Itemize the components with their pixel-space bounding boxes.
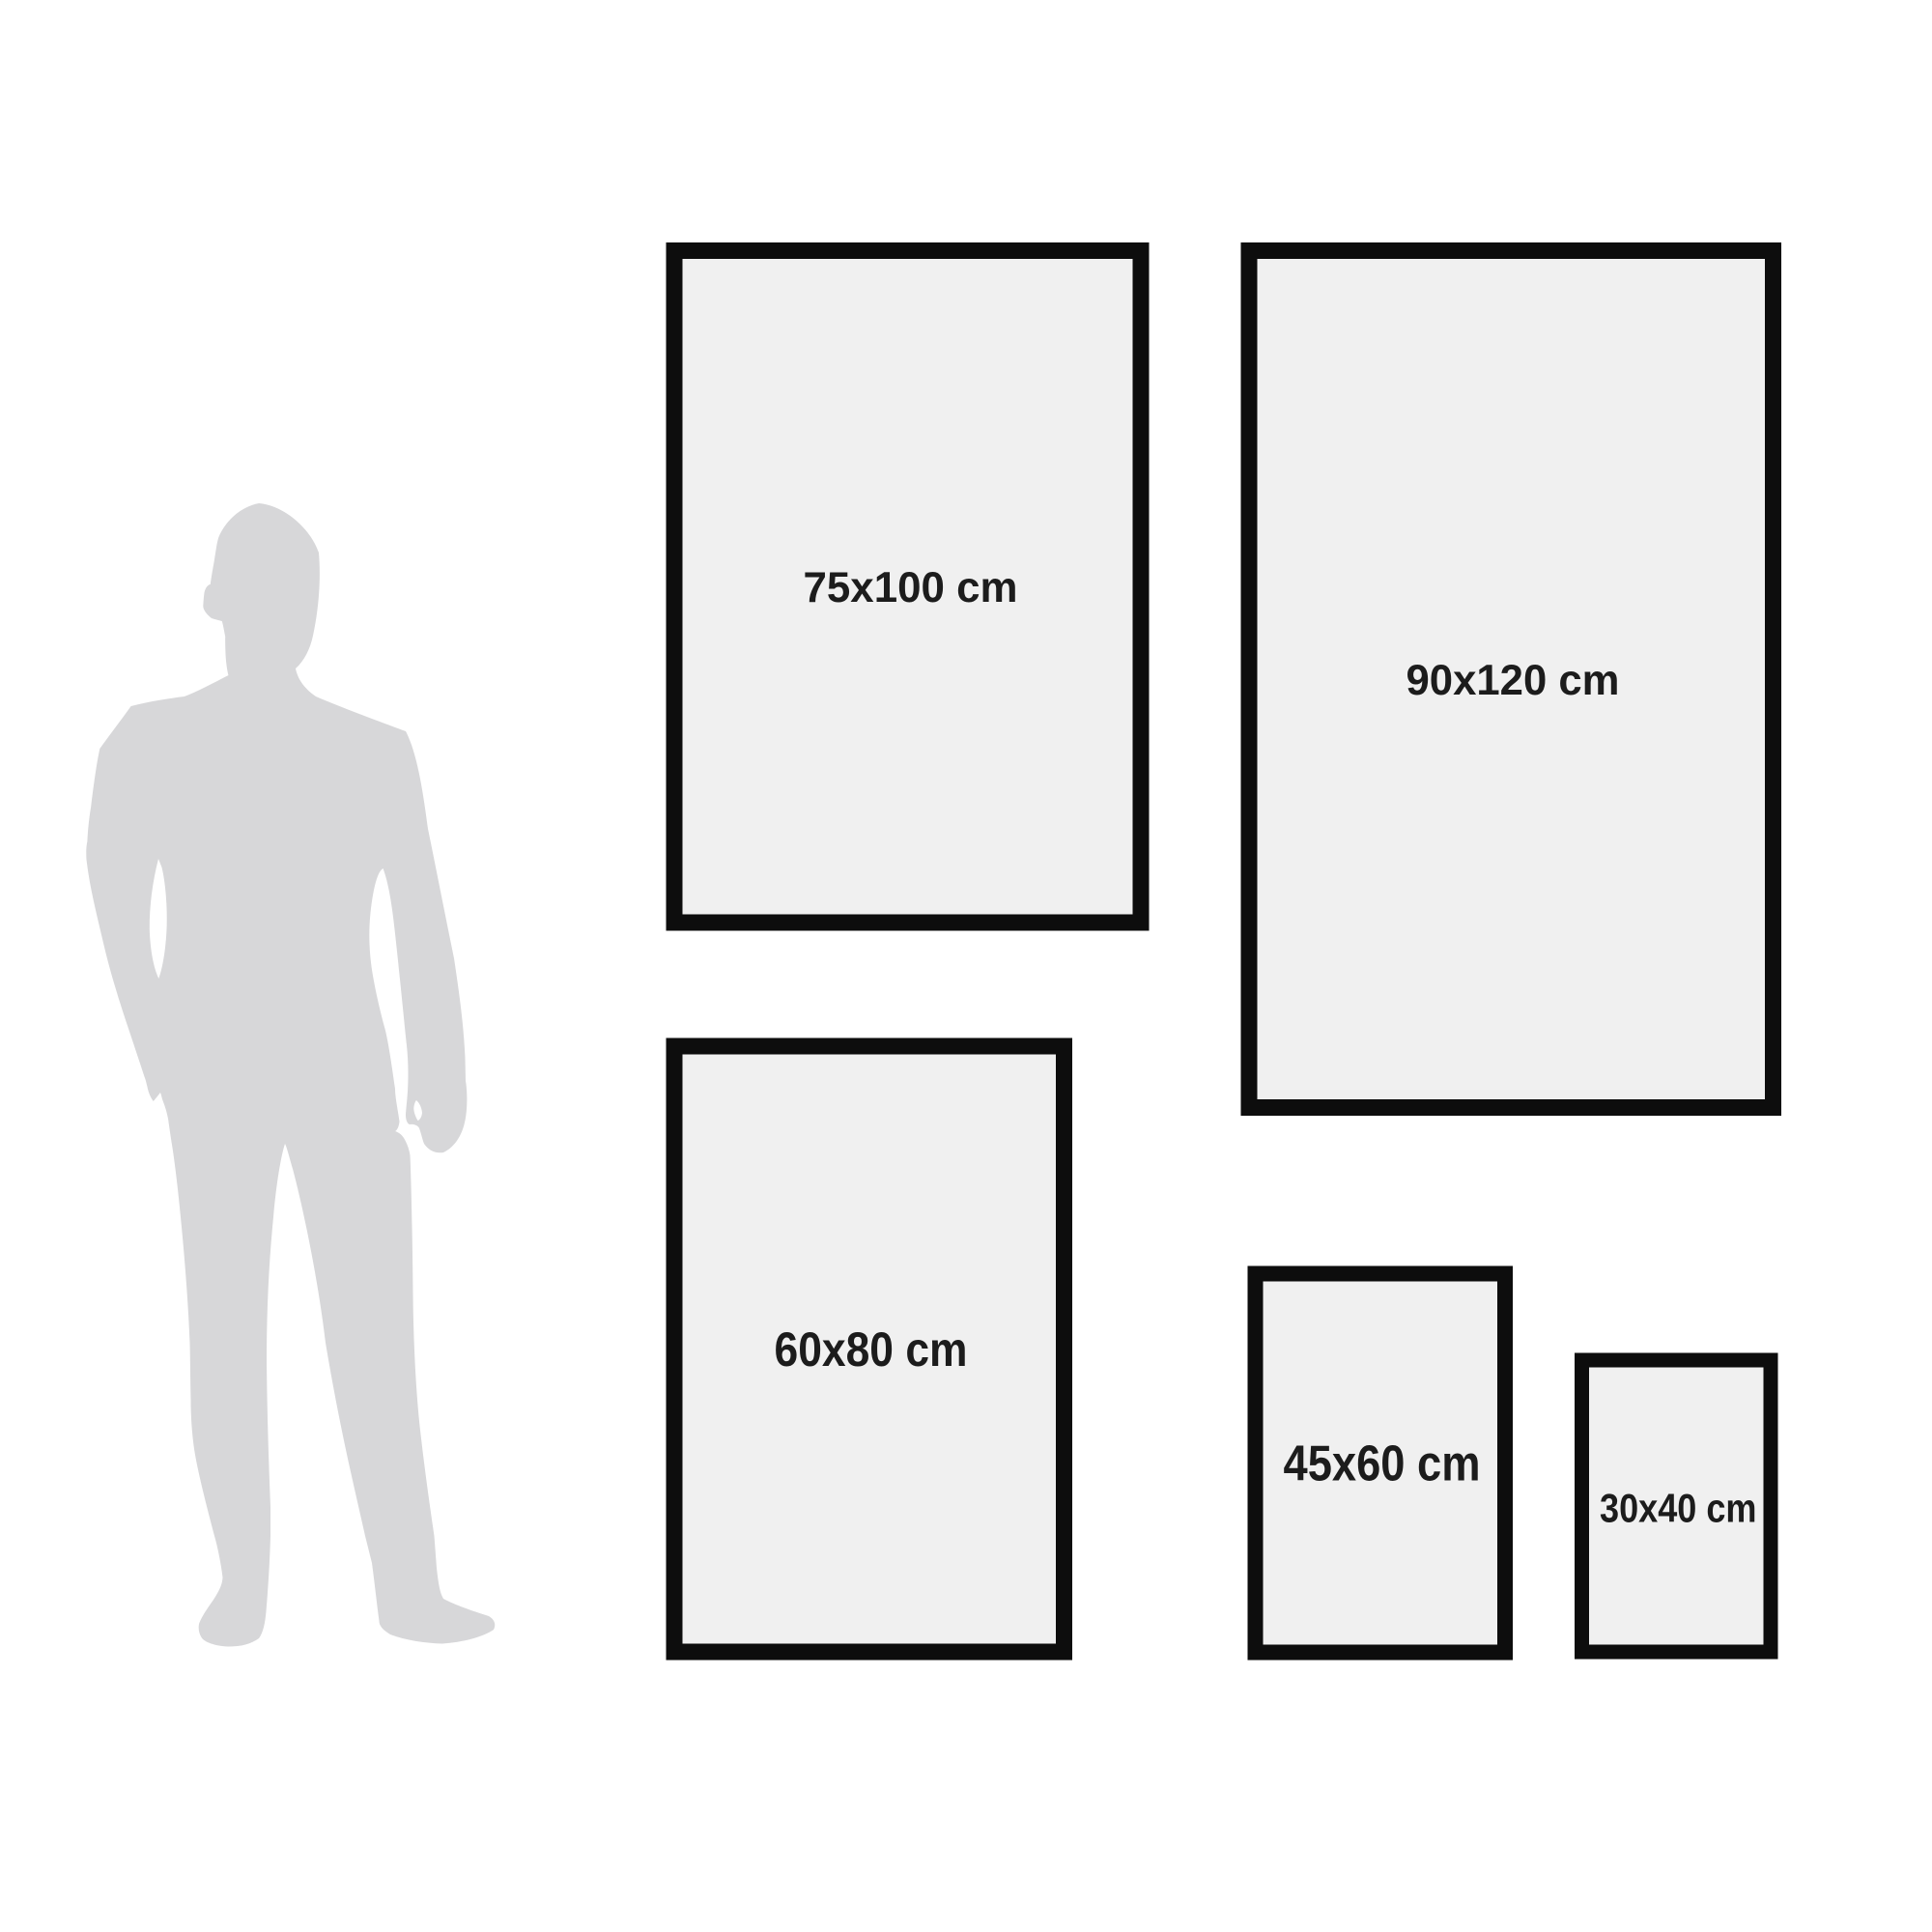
svg-text:60x80 cm: 60x80 cm <box>775 1322 968 1377</box>
svg-text:75x100 cm: 75x100 cm <box>804 564 1018 611</box>
svg-text:30x40 cm: 30x40 cm <box>1600 1486 1757 1531</box>
svg-text:45x60 cm: 45x60 cm <box>1284 1436 1481 1492</box>
svg-text:90x120 cm: 90x120 cm <box>1406 657 1620 704</box>
